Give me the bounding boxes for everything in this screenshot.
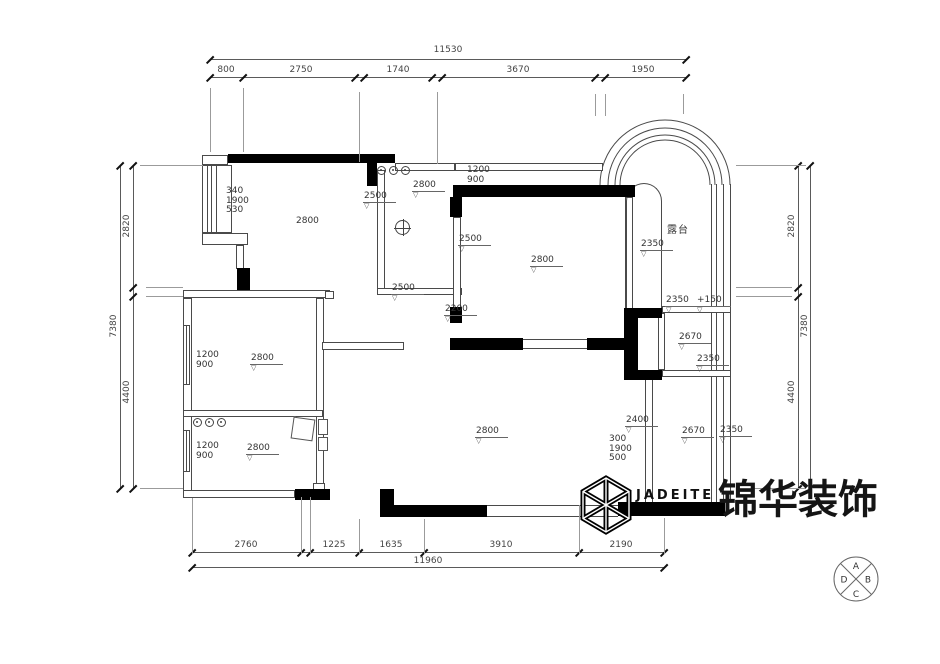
- hob-burners-icon: [193, 418, 226, 427]
- level-label: 2500▽: [391, 284, 424, 301]
- compass-b: B: [865, 576, 871, 586]
- fixture: [291, 417, 316, 442]
- wall-thin-segment: [316, 298, 324, 490]
- extension-line: [140, 165, 203, 166]
- dim-label: 800: [217, 65, 234, 75]
- dimension-line: [810, 165, 811, 488]
- level-label: 2350▽: [640, 240, 673, 257]
- extension-line: [140, 488, 183, 489]
- hob-burners-icon: [377, 166, 410, 175]
- dim-label: 7380: [109, 315, 119, 338]
- extension-line: [310, 497, 311, 554]
- extension-line: [210, 88, 211, 152]
- dim-label: 1635: [380, 540, 403, 550]
- dim-label: 2820: [122, 215, 132, 238]
- wall-line: [711, 184, 712, 502]
- compass-a: A: [853, 562, 860, 572]
- logo-brand-en: JADEITE: [636, 488, 714, 503]
- wall-line: [730, 184, 731, 502]
- dimension-tick: [660, 564, 668, 572]
- wall-thin-segment: [322, 342, 404, 350]
- wall-thin-segment: [183, 410, 323, 417]
- window-size-label: 1200900: [467, 166, 490, 185]
- wall-thin-segment: [377, 170, 385, 295]
- extension-line: [683, 94, 684, 114]
- level-label: 2400▽: [625, 416, 658, 433]
- extension-line: [736, 287, 792, 288]
- wall-black-segment: [450, 338, 523, 350]
- dim-label: 7380: [800, 315, 810, 338]
- extension-line: [736, 296, 792, 297]
- wall-line: [216, 166, 217, 232]
- level-label: 2350▽: [719, 426, 752, 443]
- wall-line: [207, 166, 208, 232]
- window-size-label: 1200900: [196, 351, 219, 370]
- wall-black-segment: [587, 338, 625, 350]
- dimension-line: [210, 77, 686, 78]
- wall-thin-segment: [325, 291, 334, 299]
- wall-line: [716, 184, 717, 502]
- fixture: [318, 437, 328, 451]
- wall-line: [186, 431, 187, 471]
- extension-line: [605, 94, 606, 116]
- level-label: 2800▽: [530, 256, 563, 273]
- jadeite-cube-logo-icon: [576, 475, 636, 535]
- level-label: +150▽: [696, 296, 731, 313]
- dimension-tick: [116, 485, 124, 493]
- wall-thin-segment: [658, 313, 665, 370]
- dimension-line: [192, 567, 664, 568]
- dim-label: 11530: [434, 45, 463, 55]
- level-label: 2200▽: [444, 305, 477, 322]
- dimension-line: [798, 165, 799, 488]
- wall-line: [186, 326, 187, 384]
- window-size-label: 1200900: [196, 442, 219, 461]
- level-label: 2800▽: [246, 444, 279, 461]
- dimension-line: [133, 165, 134, 488]
- wall-black-segment: [450, 197, 462, 217]
- wall-black-segment: [453, 185, 635, 197]
- elevation-reference-icon: A B C D: [831, 554, 881, 604]
- window-size-label: 3401900530: [226, 187, 249, 216]
- drain-icon: [395, 220, 410, 235]
- dim-label: 1740: [387, 65, 410, 75]
- dimension-tick: [682, 56, 690, 64]
- level-label: 2350▽: [665, 296, 698, 313]
- level-label: 2670▽: [678, 333, 711, 350]
- wall-black-segment: [237, 268, 250, 290]
- wall-thin-segment: [183, 290, 330, 298]
- dim-label: 3670: [507, 65, 530, 75]
- compass-d: D: [841, 576, 848, 586]
- wall-thin-segment: [453, 217, 461, 310]
- dimension-tick: [129, 485, 137, 493]
- extension-line: [437, 92, 438, 164]
- dimension-line: [210, 59, 686, 60]
- dim-label: 4400: [122, 381, 132, 404]
- dimension-line: [192, 552, 664, 553]
- wall-black-segment: [624, 308, 638, 380]
- wall-thin-segment: [202, 233, 248, 245]
- balcony-arch-icon: [598, 116, 734, 186]
- floor-plan-canvas: 1153080027501740367019502760122516353910…: [0, 0, 940, 664]
- extension-line: [736, 165, 806, 166]
- level-label: 2500▽: [458, 235, 491, 252]
- wall-black-segment: [367, 163, 377, 186]
- dim-label: 2760: [235, 540, 258, 550]
- wall-line: [211, 166, 212, 232]
- compass-c: C: [853, 590, 859, 600]
- fixture: [318, 419, 328, 435]
- level-label: 2670▽: [681, 427, 714, 444]
- extension-line: [301, 497, 302, 554]
- level-label: 2800▽: [412, 181, 445, 198]
- wall-black-segment: [228, 154, 395, 163]
- dim-label: 2820: [787, 215, 797, 238]
- room-label-terrace: 露台: [667, 221, 689, 236]
- extension-line: [146, 296, 183, 297]
- wall-thin-segment: [202, 155, 228, 165]
- wall-line: [652, 380, 653, 502]
- level-label: 2800▽: [250, 354, 283, 371]
- extension-line: [424, 519, 425, 554]
- dim-label: 11960: [414, 556, 443, 566]
- logo-brand-cn: 锦华装饰: [718, 480, 878, 520]
- wall-line: [723, 184, 724, 502]
- room-label-bedroom: 2800: [296, 216, 319, 226]
- dim-label: 4400: [787, 381, 797, 404]
- dimension-line: [120, 165, 121, 488]
- extension-line: [146, 287, 183, 288]
- extension-line: [664, 518, 665, 554]
- extension-line: [359, 519, 360, 554]
- dim-label: 2750: [290, 65, 313, 75]
- dim-label: 1950: [632, 65, 655, 75]
- wall-thin-segment: [183, 490, 295, 498]
- level-label: 2800▽: [475, 427, 508, 444]
- wall-line: [645, 380, 646, 502]
- wall-thin-segment: [523, 339, 587, 349]
- extension-line: [595, 94, 596, 116]
- dim-label: 2190: [610, 540, 633, 550]
- dimension-tick: [682, 74, 690, 82]
- wall-black-segment: [638, 308, 662, 318]
- level-label: 2350▽: [696, 355, 729, 372]
- wall-black-segment: [638, 370, 662, 380]
- level-label: 2500▽: [363, 192, 396, 209]
- extension-line: [192, 498, 193, 554]
- wall-thin-segment: [236, 245, 244, 269]
- dim-label: 3910: [490, 540, 513, 550]
- extension-line: [243, 88, 244, 152]
- window-size-label: 3001900500: [609, 435, 632, 464]
- dim-label: 1225: [323, 540, 346, 550]
- extension-line: [359, 92, 360, 162]
- wall-black-segment: [380, 505, 487, 517]
